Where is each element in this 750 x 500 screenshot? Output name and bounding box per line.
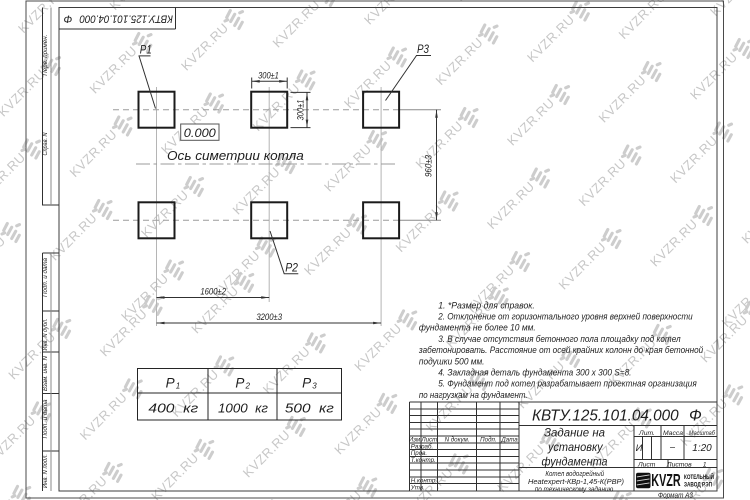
svg-text:960±3: 960±3: [424, 155, 434, 177]
svg-text:Масштаб: Масштаб: [689, 429, 716, 437]
svg-text:4. Закладная деталь фундамента: 4. Закладная деталь фундамента 300 x 300…: [438, 368, 631, 378]
svg-text:КВТУ.125.101.04.000: КВТУ.125.101.04.000: [79, 13, 173, 25]
svg-text:400 кг: 400 кг: [148, 401, 198, 416]
svg-text:P2: P2: [285, 263, 298, 275]
svg-text:фундамента не более 10 мм.: фундамента не более 10 мм.: [419, 323, 536, 333]
svg-text:Утв.: Утв.: [410, 484, 425, 491]
svg-text:–: –: [669, 442, 676, 452]
svg-text:N докум.: N докум.: [445, 437, 470, 444]
svg-text:Листов: Листов: [666, 461, 692, 468]
svg-text:Лист: Лист: [637, 461, 656, 468]
svg-text:КОТЕЛЬНЫЙ: КОТЕЛЬНЫЙ: [684, 473, 714, 481]
svg-text:1. *Размер для справок.: 1. *Размер для справок.: [438, 300, 535, 310]
svg-text:Взам. инв. N: Взам. инв. N: [42, 356, 49, 391]
svg-text:КВТУ.125.101.04.000: КВТУ.125.101.04.000: [532, 407, 679, 424]
svg-text:Перв. примен.: Перв. примен.: [42, 35, 49, 76]
svg-text:300±1: 300±1: [296, 100, 306, 121]
svg-text:Инв. N дубл.: Инв. N дубл.: [41, 319, 49, 351]
svg-text:Т.контр.: Т.контр.: [411, 457, 436, 464]
svg-text:по техническому заданию: по техническому заданию: [535, 484, 614, 493]
svg-text:Задание на: Задание на: [544, 426, 605, 440]
svg-text:Справ. N: Справ. N: [42, 132, 49, 155]
svg-text:Формат А3: Формат А3: [658, 492, 693, 499]
svg-text:1000 кг: 1000 кг: [218, 401, 269, 416]
svg-text:3. В случае отсутствия бетонно: 3. В случае отсутствия бетонного пола пл…: [438, 334, 681, 344]
svg-text:1600±2: 1600±2: [200, 287, 226, 297]
svg-text:3200±3: 3200±3: [256, 312, 282, 322]
svg-text:Подп. и дата: Подп. и дата: [41, 258, 49, 297]
svg-text:забетонировать. Расстояние от: забетонировать. Расстояние от осей крайн…: [418, 345, 703, 355]
svg-text:фундамента: фундамента: [542, 454, 608, 468]
svg-text:1: 1: [703, 461, 707, 468]
svg-text:установку: установку: [547, 440, 604, 454]
svg-text:P1: P1: [140, 44, 152, 56]
svg-text:Инв. N подл.: Инв. N подл.: [41, 454, 49, 488]
svg-text:500 кг: 500 кг: [285, 401, 335, 416]
svg-text:И: И: [636, 443, 643, 454]
svg-text:2. Отклонение от горизонтально: 2. Отклонение от горизонтального уровня …: [437, 312, 692, 322]
svg-text:1:20: 1:20: [692, 443, 712, 454]
svg-text:Подп.: Подп.: [480, 437, 496, 444]
svg-text:300±1: 300±1: [258, 71, 279, 81]
svg-text:5. Фундамент под котел разраба: 5. Фундамент под котел разрабатывает про…: [438, 379, 697, 389]
svg-text:Ф: Ф: [63, 13, 72, 25]
svg-text:Ф: Ф: [689, 407, 702, 424]
svg-text:Дата: Дата: [500, 437, 518, 444]
svg-text:по нагрузкам на фундамент.: по нагрузкам на фундамент.: [419, 390, 528, 400]
svg-text:P3: P3: [417, 44, 430, 56]
svg-text:KVZR: KVZR: [651, 470, 681, 490]
svg-text:Лит.: Лит.: [638, 430, 655, 437]
svg-text:ЗАВОД РЭП: ЗАВОД РЭП: [684, 482, 712, 488]
svg-text:подушки 500 мм.: подушки 500 мм.: [419, 356, 485, 366]
svg-text:0.000: 0.000: [184, 126, 216, 140]
svg-text:Подп. и дата: Подп. и дата: [41, 399, 49, 438]
svg-text:Ось симетрии котла: Ось симетрии котла: [167, 148, 304, 163]
svg-text:Масса: Масса: [663, 430, 683, 437]
